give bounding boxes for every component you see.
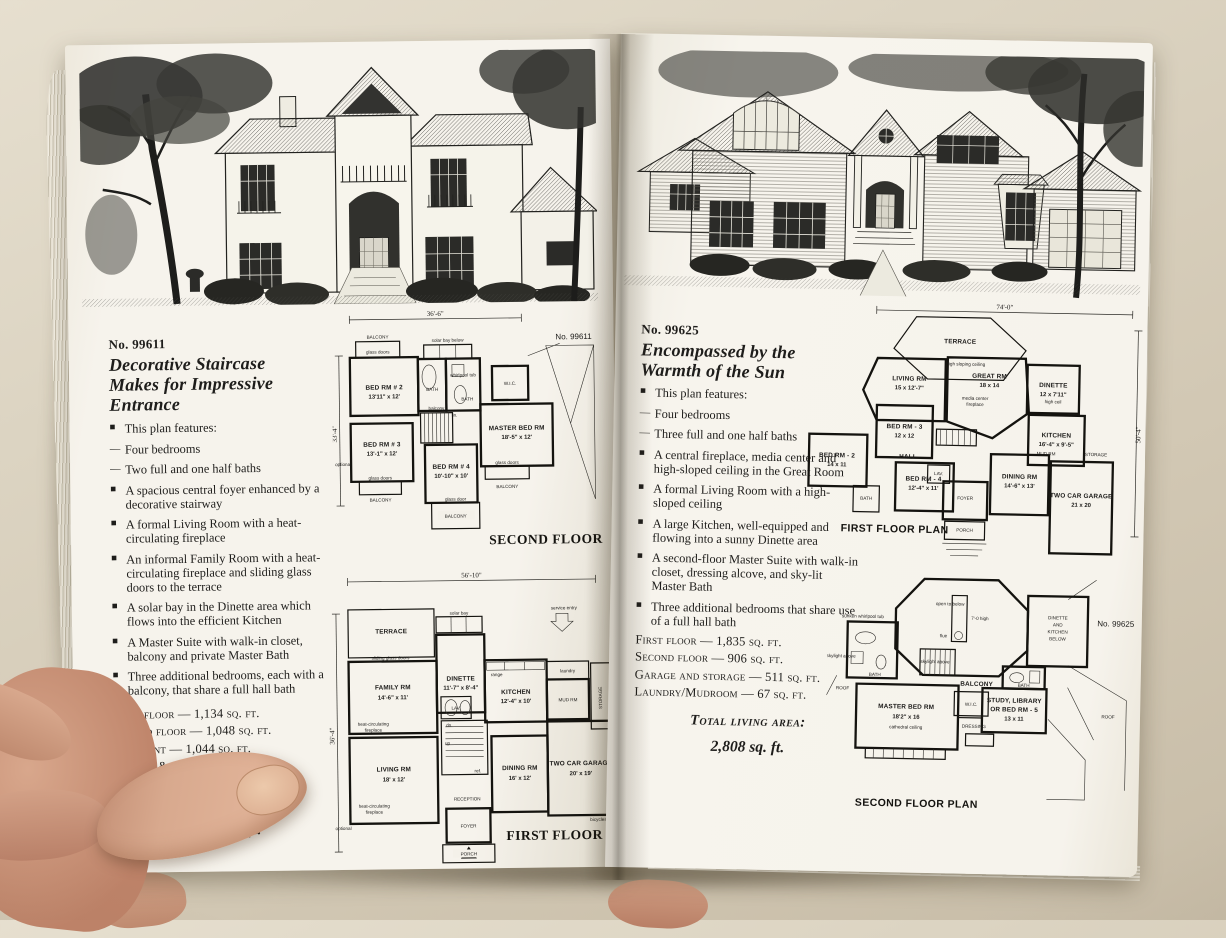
room-size: 21 x 20 — [1071, 503, 1091, 509]
optional-label: optional — [335, 462, 351, 467]
feature-marker: — — [110, 442, 125, 456]
room-size: 12'-4" x 11' — [908, 486, 939, 493]
bicycles-label: bicycles — [590, 817, 607, 822]
porch-label: PORCH — [461, 851, 478, 856]
service-entry-label: service entry — [551, 605, 578, 610]
room-size: 18' x 12' — [383, 777, 406, 783]
feature-item: ■Three additional bedrooms that share us… — [636, 599, 858, 631]
wic-label: W.I.C. — [504, 381, 517, 386]
feature-text: A solar bay in the Dinette area which fl… — [127, 598, 330, 629]
feature-text: Four bedrooms — [655, 406, 731, 421]
room-size: 18'-5" x 12' — [502, 435, 533, 441]
floor-label: FIRST FLOOR — [506, 827, 603, 843]
bath-label: BATH — [860, 496, 872, 501]
room-size: 14'-6" x 11' — [378, 695, 409, 701]
feature-text: A spacious central foyer enhanced by a d… — [125, 481, 328, 512]
fireplace-label: fireplace — [366, 810, 384, 815]
feature-marker: ■ — [112, 601, 127, 629]
room-label: DINETTE — [446, 675, 475, 682]
feature-text: Two full and one half baths — [125, 461, 261, 477]
room-label: MASTER BED RM — [489, 425, 545, 433]
dim-top: 74'-0" — [996, 303, 1013, 311]
whirlpool-label: sunken whirlpool tub — [842, 613, 884, 619]
room-size: 14 x 11 — [827, 462, 847, 468]
feature-text: This plan features: — [125, 421, 217, 436]
laundry-label: laundry — [560, 668, 576, 673]
feature-item: ■A Master Suite with walk-in closet, bal… — [112, 633, 330, 664]
room-size: 16' x 12' — [509, 776, 532, 782]
feature-marker: ■ — [638, 481, 654, 509]
room-label: LIVING RM — [377, 766, 411, 773]
title-line: Decorative Staircase — [109, 352, 329, 375]
ref-label: ref. — [475, 768, 482, 773]
foyer-label: FOYER — [957, 496, 974, 501]
dim-left: 36'-4" — [328, 727, 336, 744]
floor-label: SECOND FLOOR — [489, 531, 603, 547]
feature-item: ■This plan features: — [110, 419, 328, 436]
glass-doors-label: glass doors — [366, 349, 390, 354]
feature-text: A formal Living Room with a heat-circula… — [126, 515, 329, 546]
open-below-label: open to below — [936, 601, 965, 607]
room-size: 18'2" x 16 — [892, 714, 920, 721]
room-size: 13'11" x 12' — [369, 394, 401, 400]
room-size: 20' x 19' — [570, 771, 593, 777]
feature-marker: ■ — [111, 552, 127, 594]
skylight-label: skylight above — [920, 659, 950, 665]
mudroom-label: MUD RM — [559, 697, 578, 702]
mudroom-label: MUD RM — [1037, 451, 1056, 456]
dim-right: 50'-4" — [1134, 426, 1142, 443]
terrace-label: TERRACE — [944, 338, 977, 346]
fireplace-label: fireplace — [966, 402, 984, 407]
bath-label: BATH — [426, 387, 438, 392]
fireplace-label: fireplace — [365, 728, 383, 733]
wic-label: W.I.C. — [965, 702, 978, 707]
balcony-label: BALCONY — [370, 497, 392, 502]
feature-marker: — — [110, 463, 125, 477]
room-label: MASTER BED RM — [878, 703, 934, 711]
feature-marker: ■ — [111, 518, 126, 546]
glass-doors-label: glass doors — [368, 475, 392, 480]
room-size: 14'-6" x 13' — [1004, 483, 1035, 490]
room-label: BED RM - 3 — [887, 423, 923, 431]
glass-door-label: glass door — [445, 496, 467, 501]
feature-list-left: ■This plan features: —Four bedrooms —Two… — [110, 419, 331, 704]
terrace-label: TERRACE — [375, 628, 408, 635]
walls — [348, 607, 615, 864]
feature-marker: ■ — [637, 516, 653, 544]
house-illustration-left — [79, 49, 598, 307]
bath-label: BATH — [869, 672, 881, 677]
room-label: STUDY, LIBRARY — [987, 697, 1042, 705]
storage-label: STORAGE — [1085, 452, 1107, 457]
whirlpool-label: whirlpool tub — [450, 372, 476, 377]
room-label: BED RM # 4 — [432, 463, 470, 470]
below-label: KITCHEN — [1048, 629, 1068, 634]
storage-label: STORAGE — [598, 687, 603, 709]
feature-text: Three full and one half baths — [654, 427, 797, 444]
high-sloping-label: high sloping ceiling — [946, 361, 985, 367]
room-size: 18 x 14 — [979, 383, 999, 389]
room-label: DINETTE — [1039, 382, 1068, 390]
feature-text: A Master Suite with walk-in closet, balc… — [127, 633, 330, 664]
high-ceil-label: high ceil — [1045, 399, 1062, 404]
plan-number-left: No. 99611 — [109, 336, 166, 353]
feature-marker: ■ — [112, 635, 127, 663]
below-label: DINETTE — [1048, 615, 1068, 620]
floor-label: FIRST FLOOR PLAN — [841, 522, 949, 536]
floor-plan-right-second: open to below 7'-0 high flue skylight ab… — [823, 555, 1143, 853]
sliding-doors-label: sliding glass doors — [372, 655, 411, 660]
walls — [845, 577, 1088, 762]
plan-number-right: No. 99625 — [641, 321, 699, 338]
bath-label: BATH — [1018, 683, 1030, 688]
dim-left: 33'-4" — [331, 425, 339, 442]
total-value: 2,808 sq. ft. — [652, 737, 842, 759]
feature-item: ■An informal Family Room with a heat-cir… — [111, 550, 329, 595]
floor-label: SECOND FLOOR PLAN — [855, 797, 978, 811]
feature-text: Three additional bedrooms, each with a b… — [128, 667, 331, 698]
room-size: 12 x 7'11" — [1040, 392, 1067, 399]
room-size: 15 x 12'-7" — [895, 385, 924, 392]
room-label: KITCHEN — [1042, 432, 1072, 440]
solar-bay-label: solar bay below — [432, 338, 465, 343]
feature-marker: ■ — [636, 551, 652, 593]
roof-label: ROOF — [836, 685, 850, 690]
room-label: DINING RM — [1002, 473, 1038, 481]
photo-of-open-plan-book: { "left_page": { "plan_no": "No. 99611",… — [0, 0, 1226, 920]
feature-item: ■A spacious central foyer enhanced by a … — [110, 481, 328, 512]
room-label: LIVING RM — [892, 375, 927, 383]
room-label: FAMILY RM — [375, 684, 411, 691]
total-living-area-right: Total living area: 2,808 sq. ft. — [652, 712, 843, 759]
lav-label: LAV. — [934, 471, 943, 476]
media-center-label: media center — [962, 396, 989, 402]
room-size: 13 x 11 — [1004, 716, 1024, 722]
plan-title-left: Decorative Staircase Makes for Impressiv… — [109, 352, 330, 415]
below-label: BELOW — [1049, 636, 1066, 641]
feature-marker: — — [640, 406, 655, 420]
feature-item: ■Three additional bedrooms, each with a … — [113, 667, 331, 698]
feature-item: —Two full and one half baths — [110, 460, 328, 477]
room-size: 10'-10" x 10' — [434, 473, 468, 479]
floor-plan-left-first: 56'-10" 36'-4" TERRACE sliding glass d — [327, 567, 620, 869]
glass-doors-label: glass doors — [495, 460, 519, 465]
dn-label: dn. — [446, 723, 452, 728]
room-label: BED RM # 2 — [365, 384, 403, 391]
hall-label: HALL — [899, 453, 917, 460]
total-label: Total living area: — [653, 712, 843, 733]
porch-label: PORCH — [956, 527, 973, 532]
fireplace-label: heat-circulating — [358, 721, 390, 726]
room-label: TWO CAR GARAGE — [1050, 492, 1113, 500]
flue-label: flue — [940, 633, 948, 638]
title-line: Makes for Impressive — [109, 372, 329, 395]
feature-item: —Four bedrooms — [110, 440, 328, 457]
room-label: KITCHEN — [501, 689, 531, 696]
feature-item: ■A formal Living Room with a heat-circul… — [111, 515, 329, 546]
feature-marker: ■ — [640, 385, 655, 399]
roof-outline — [528, 343, 596, 500]
dressing-label: DRESSING — [962, 724, 987, 729]
room-label: BED RM - 2 — [819, 452, 855, 460]
room-size: 13'-1" x 12' — [367, 451, 398, 457]
lav-label: LAV. — [451, 706, 460, 711]
floor-plan-left-second: 36'-6" 33'-4" No. 99611 BALCONY glass do… — [331, 303, 614, 564]
house-illustration-right — [624, 49, 1145, 301]
lin-label: lin. — [452, 413, 458, 418]
roof-label: ROOF — [1101, 714, 1115, 719]
feature-marker: ■ — [110, 483, 125, 511]
fireplace-label: heat-circulating — [359, 803, 391, 808]
dim-top: 36'-6" — [427, 310, 444, 318]
title-line: Entrance — [109, 392, 329, 415]
room-size: 12 x 12 — [894, 433, 914, 439]
below-label: AND — [1053, 622, 1063, 627]
optional-label: optional — [335, 826, 351, 831]
plan-no-on-plan: No. 99611 — [555, 332, 592, 341]
high-label: 7'-0 high — [971, 616, 989, 621]
room-label: DINING RM — [502, 765, 538, 772]
room-size: 16'-4" x 9'-5" — [1039, 442, 1075, 449]
floor-plan-right-first: 74'-0" 50'-4" TERRACE high sloping ceili… — [794, 298, 1146, 567]
feature-item: ■A solar bay in the Dinette area which f… — [112, 598, 330, 629]
dim-top: 56'-10" — [461, 571, 482, 579]
feature-text: An informal Family Room with a heat-circ… — [126, 550, 329, 595]
room-label: TWO CAR GARAGE — [550, 760, 613, 768]
stair-balcony-label: balcony — [428, 406, 445, 411]
skylight-label: skylight above — [827, 653, 857, 659]
balcony-label: BALCONY — [496, 484, 518, 489]
feature-marker: ■ — [636, 599, 652, 627]
reception-label: RECEPTION — [454, 796, 481, 801]
solar-bay-label: solar bay — [450, 610, 469, 615]
feature-text: This plan features: — [655, 386, 747, 402]
room-label: BED RM # 3 — [363, 441, 401, 448]
feature-marker: ■ — [110, 422, 125, 436]
feature-text: Four bedrooms — [125, 441, 201, 456]
balcony-label: BALCONY — [445, 513, 467, 518]
up-label: up — [445, 741, 451, 746]
cathedral-label: cathedral ceiling — [889, 724, 923, 730]
room-label: OR BED RM - 5 — [990, 706, 1038, 714]
balcony-label: BALCONY — [367, 334, 389, 339]
feature-marker: ■ — [639, 447, 655, 475]
room-label: GREAT RM — [972, 373, 1007, 381]
bath-label: BATH — [461, 396, 473, 401]
book-right-page[interactable]: No. 99625 Encompassed by the Warmth of t… — [605, 33, 1153, 877]
feature-marker: — — [639, 426, 654, 440]
plan-no-on-plan: No. 99625 — [1097, 619, 1135, 629]
room-label: BED RM - 4 — [906, 476, 942, 484]
balcony-label: BALCONY — [960, 681, 993, 689]
room-size: 12'-4" x 10' — [501, 699, 532, 705]
foyer-label: FOYER — [461, 823, 478, 828]
range-label: range — [491, 672, 503, 677]
room-size: 11'-7" x 8'-4" — [443, 685, 478, 691]
